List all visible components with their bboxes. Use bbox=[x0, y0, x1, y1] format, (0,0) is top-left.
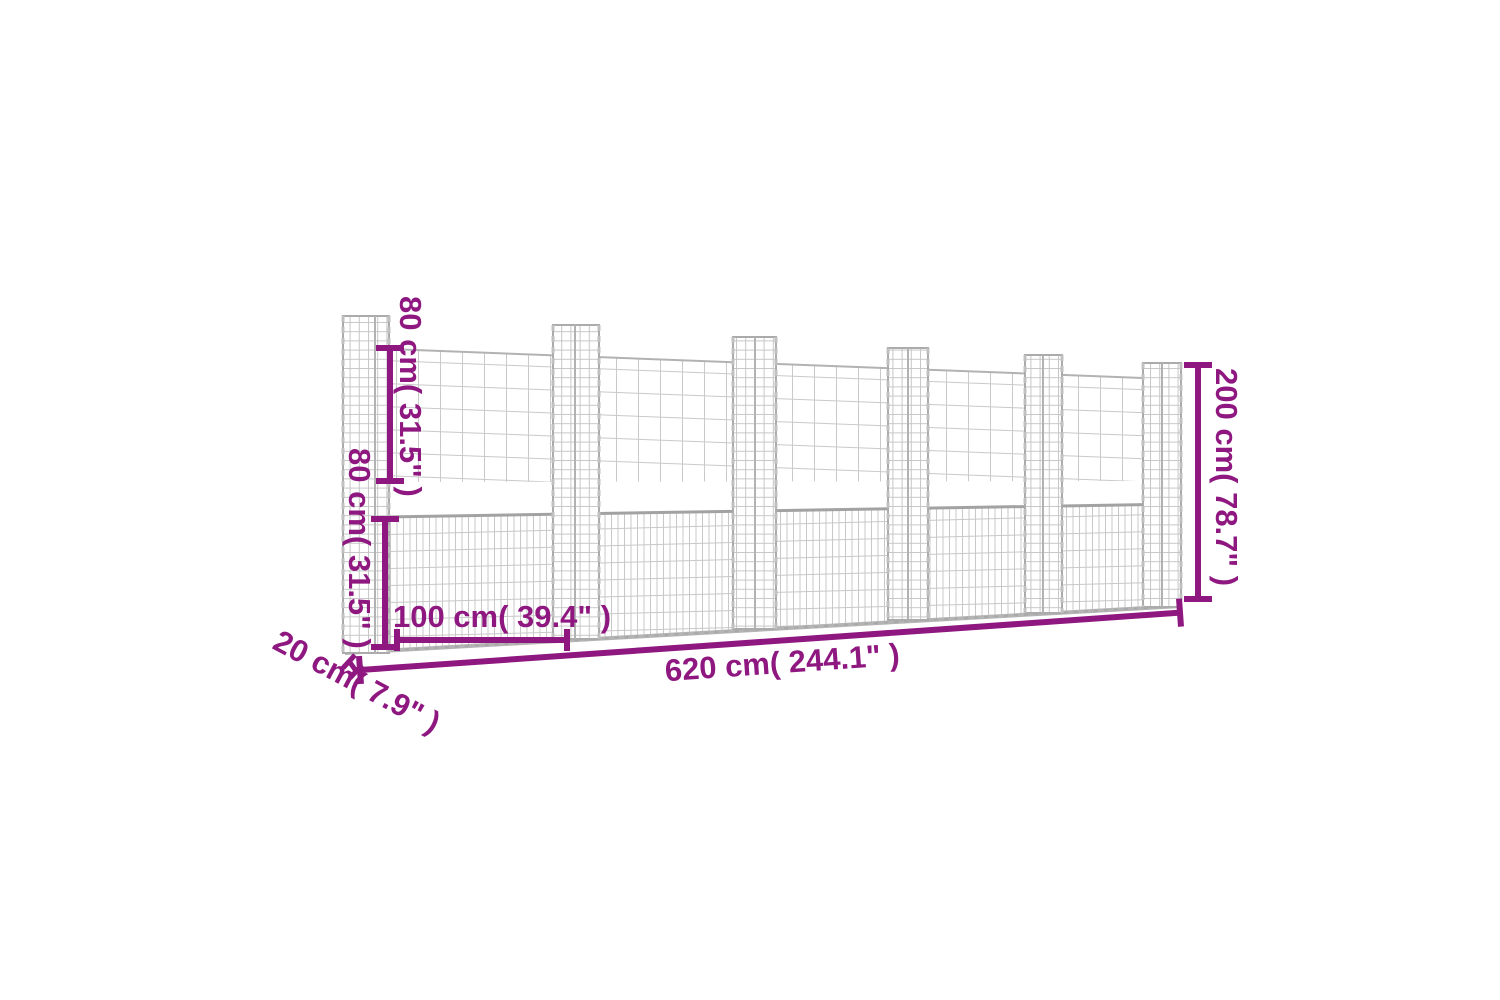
gabion-dimension-diagram: 80 cm( 31.5" ) 80 cm( 31.5" ) 200 cm( 78… bbox=[0, 0, 1500, 1000]
label-lower-height: 80 cm( 31.5" ) bbox=[342, 448, 377, 649]
label-post-spacing: 100 cm( 39.4" ) bbox=[393, 599, 611, 634]
gabion-post-6 bbox=[1143, 363, 1181, 607]
label-upper-height: 80 cm( 31.5" ) bbox=[393, 296, 428, 497]
gabion-post-5 bbox=[1025, 355, 1062, 613]
dimension-total-height: 200 cm( 78.7" ) bbox=[1184, 365, 1244, 599]
gabion-post-4 bbox=[888, 348, 928, 620]
diagram-canvas: 80 cm( 31.5" ) 80 cm( 31.5" ) 200 cm( 78… bbox=[0, 0, 1500, 1000]
label-total-height: 200 cm( 78.7" ) bbox=[1209, 368, 1244, 586]
gabion-post-3 bbox=[733, 337, 776, 629]
gabion-post-2 bbox=[553, 325, 599, 639]
